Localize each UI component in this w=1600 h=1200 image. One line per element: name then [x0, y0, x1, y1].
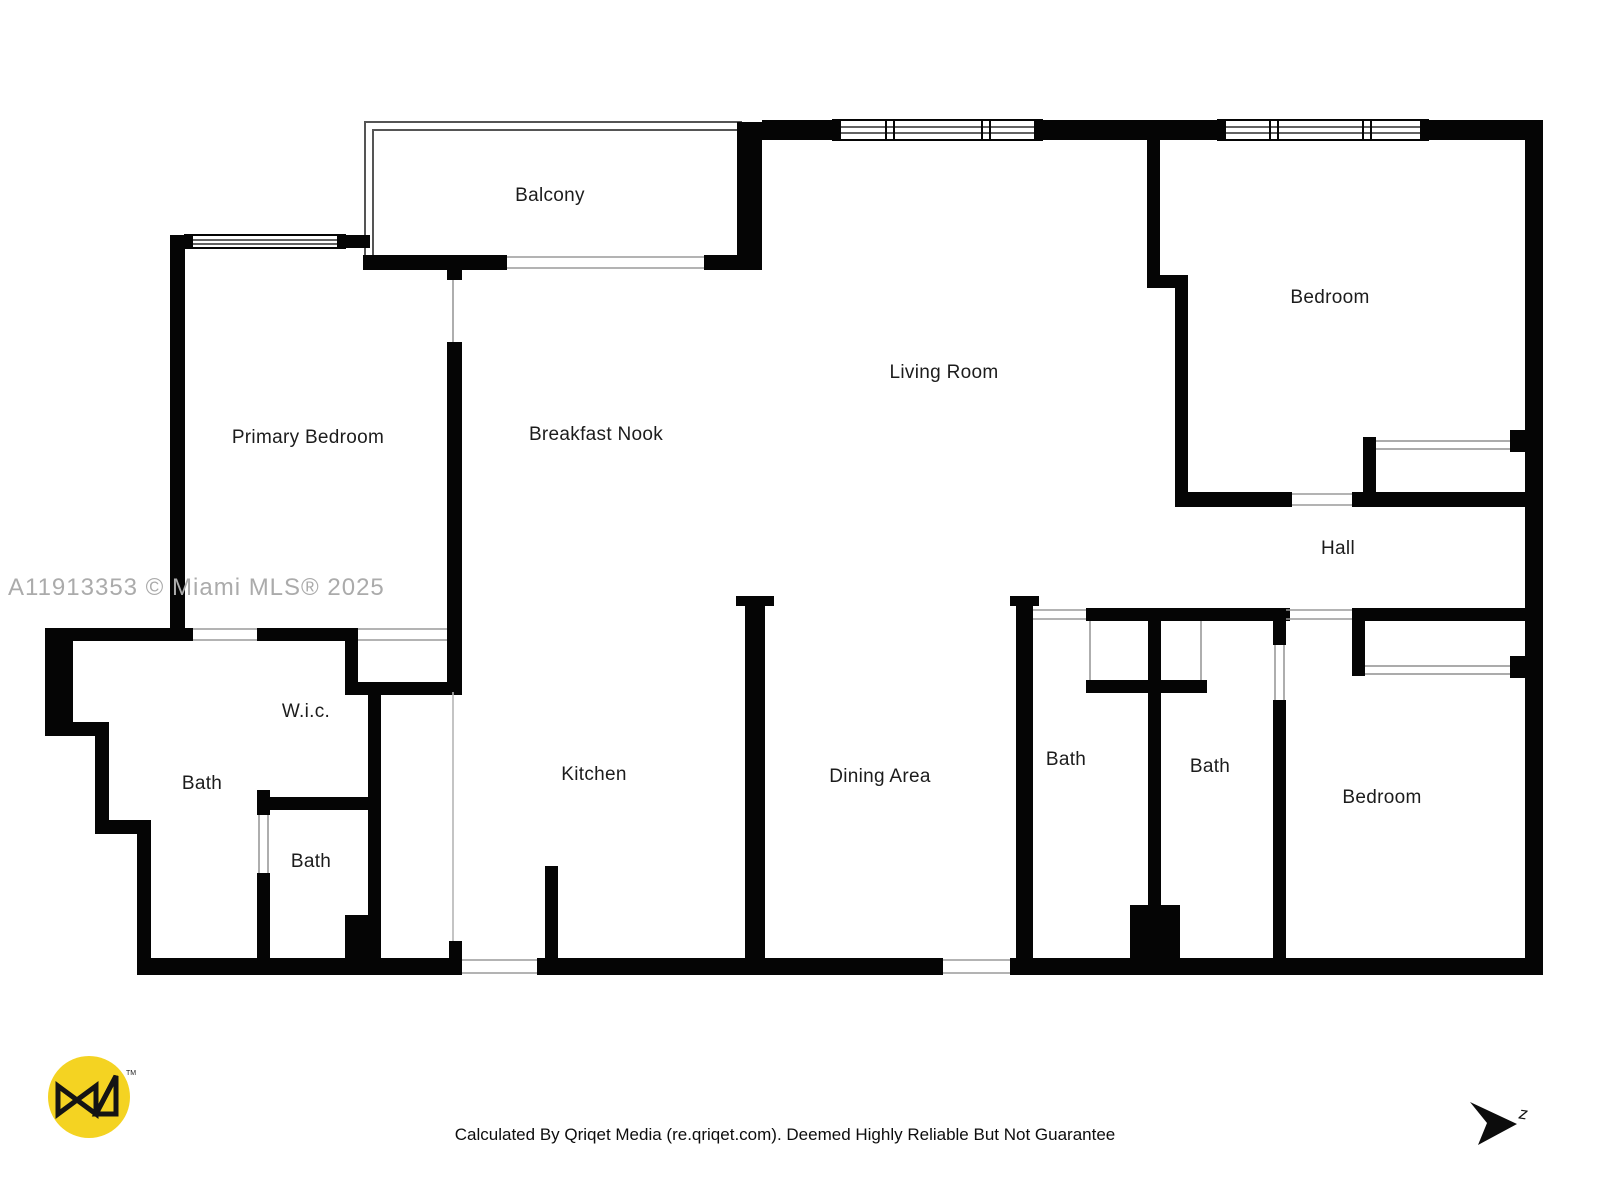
window-primary-bedroom [185, 235, 345, 248]
room-label: Living Room [890, 362, 999, 384]
room-label: Breakfast Nook [529, 424, 663, 446]
mls-watermark: A11913353 © Miami MLS® 2025 [8, 574, 385, 602]
room-label: Hall [1321, 538, 1355, 560]
room-label: Kitchen [561, 764, 626, 786]
room-label: Bedroom [1342, 787, 1421, 809]
floor-plan-page: BalconyPrimary BedroomBreakfast NookLivi… [0, 0, 1600, 1200]
window-living-room [833, 120, 1042, 140]
north-arrow-icon [1462, 1092, 1522, 1152]
room-label: Primary Bedroom [232, 427, 384, 449]
room-label: Bedroom [1290, 287, 1369, 309]
room-label: Bath [291, 851, 331, 873]
footer-disclaimer: Calculated By Qriqet Media (re.qriqet.co… [0, 1125, 1570, 1145]
room-label: Dining Area [829, 766, 931, 788]
window-bedroom [1218, 120, 1428, 140]
logo-trademark: TM [126, 1070, 136, 1077]
room-label: W.i.c. [282, 701, 330, 723]
room-label: Bath [1190, 756, 1230, 778]
room-label: Balcony [515, 185, 585, 207]
brand-logo-icon [44, 1052, 134, 1142]
room-label: Bath [1046, 749, 1086, 771]
room-label: Bath [182, 773, 222, 795]
fixture-lines [453, 441, 1510, 941]
